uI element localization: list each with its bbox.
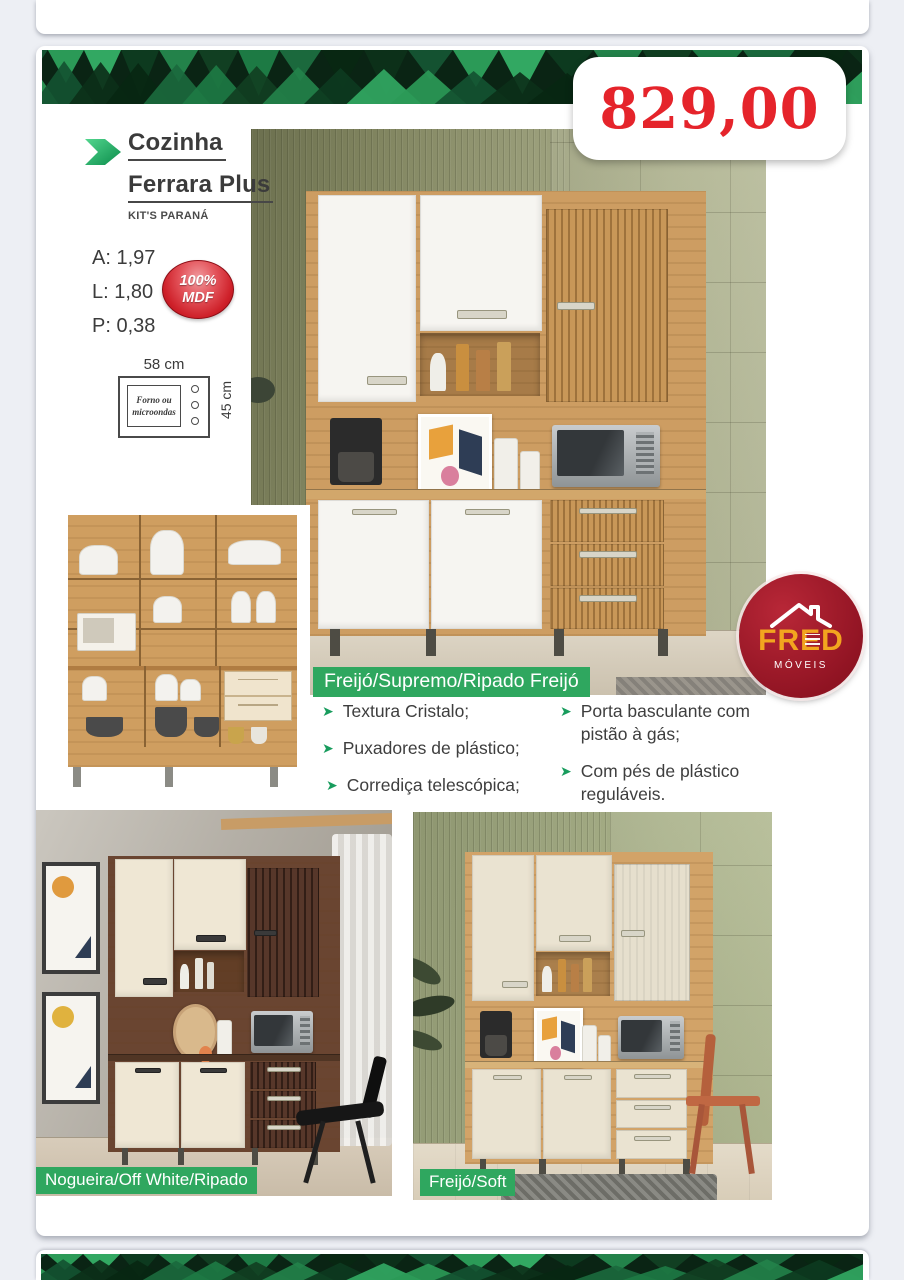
drawer <box>224 696 292 721</box>
drawer <box>224 671 292 696</box>
feature-item: ➤ Puxadores de plástico; <box>322 737 552 761</box>
product-title-line2: Ferrara Plus <box>128 171 273 203</box>
product-title-line1: Cozinha <box>128 129 226 161</box>
variant-photo-nogueira: Nogueira/Off White/Ripado <box>36 810 392 1196</box>
microwave <box>251 1011 314 1052</box>
variant-photo-freijo-soft: Freijó/Soft <box>413 812 772 1200</box>
cutting-board <box>173 1004 218 1060</box>
oven-niche-diagram: 58 cm Forno ou microondas 45 cm <box>118 356 258 438</box>
previous-page-edge <box>36 0 869 34</box>
main-product-photo <box>251 129 766 695</box>
mdf-badge: 100% MDF <box>162 260 234 319</box>
bullet-arrow-icon: ➤ <box>322 700 334 724</box>
fred-moveis-logo: FRED MÓVEIS <box>739 574 863 698</box>
bullet-arrow-icon: ➤ <box>560 700 572 746</box>
cabinet-door <box>420 195 542 331</box>
niche-height-label: 45 cm <box>218 369 234 431</box>
slatted-door <box>546 209 668 402</box>
bottom-banner <box>41 1254 863 1280</box>
price-value: 829,00 <box>599 76 819 142</box>
cabinet-door <box>318 195 416 402</box>
microwave <box>618 1016 685 1060</box>
oven-slot: Forno ou microondas <box>127 385 181 427</box>
feature-item: ➤ Com pés de plástico reguláveis. <box>560 760 765 806</box>
art-frame <box>418 414 492 496</box>
microwave <box>552 425 660 487</box>
variant-label-main: Freijó/Supremo/Ripado Freijó <box>313 667 590 697</box>
rug <box>616 677 766 695</box>
kitchen-cabinet <box>306 191 706 636</box>
spec-width: L: 1,80 <box>92 281 153 304</box>
rug <box>501 1174 717 1200</box>
catalog-page: 829,00 Cozinha Ferrara Plus KIT'S PARANÁ… <box>0 0 904 1280</box>
bullet-arrow-icon: ➤ <box>322 737 334 761</box>
wall-picture <box>42 862 100 974</box>
drawer-stack <box>550 500 664 629</box>
bullet-arrow-icon: ➤ <box>560 760 572 806</box>
kitchen-cabinet <box>465 852 713 1164</box>
price-tag: 829,00 <box>573 57 846 160</box>
spec-height: A: 1,97 <box>92 247 155 270</box>
product-title: Cozinha Ferrara Plus KIT'S PARANÁ <box>128 129 273 222</box>
store-subtitle: MÓVEIS <box>774 660 828 671</box>
niche-width-label: 58 cm <box>118 356 210 373</box>
variant-label-freijo-soft: Freijó/Soft <box>420 1169 515 1196</box>
microwave <box>77 613 136 650</box>
art-frame <box>534 1008 582 1067</box>
niche-outline: Forno ou microondas <box>118 376 210 438</box>
coffee-maker <box>330 418 382 485</box>
coffee-maker <box>480 1011 512 1058</box>
wall-picture <box>42 992 100 1104</box>
product-brand: KIT'S PARANÁ <box>128 210 273 222</box>
spec-depth: P: 0,38 <box>92 315 155 338</box>
variant-label-nogueira: Nogueira/Off White/Ripado <box>36 1167 257 1194</box>
chair <box>682 1034 766 1174</box>
open-cabinet <box>68 515 297 767</box>
feature-item: ➤ Textura Cristalo; <box>322 700 552 724</box>
open-shelf <box>420 333 540 395</box>
chair-silhouette <box>294 1058 390 1184</box>
open-cabinet-photo <box>55 505 310 793</box>
store-name: FRED <box>758 626 844 656</box>
bullet-arrow-icon: ➤ <box>326 774 338 798</box>
title-arrow-icon <box>84 137 122 167</box>
feature-item: ➤ Corrediça telescópica; <box>326 774 556 798</box>
feature-item: ➤ Porta basculante com pistão à gás; <box>560 700 765 746</box>
